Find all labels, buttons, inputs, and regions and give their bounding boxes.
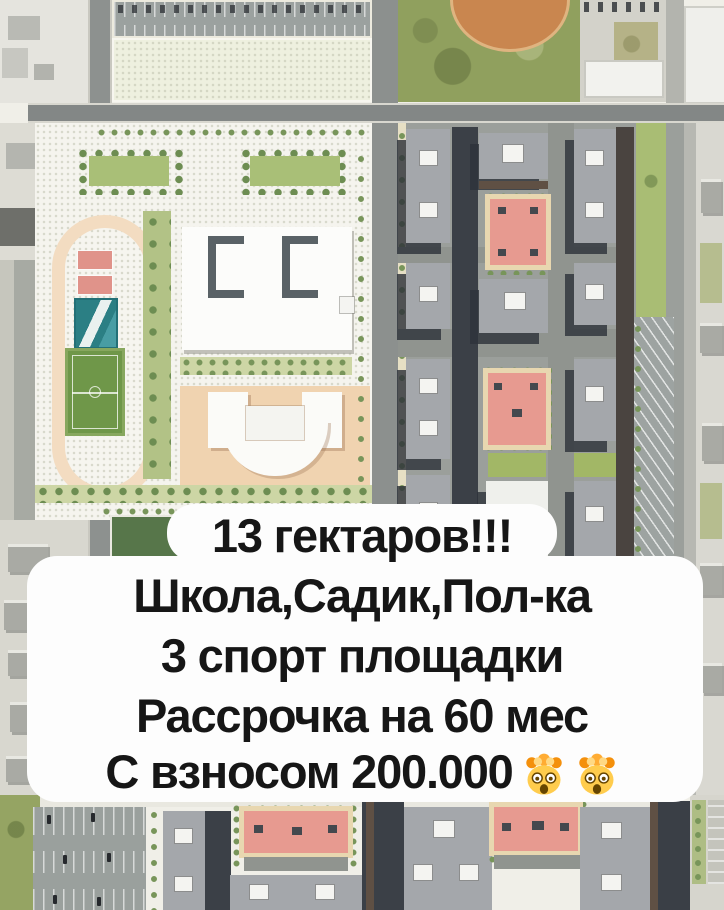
inner-street xyxy=(244,857,348,871)
car xyxy=(63,855,67,864)
basketball-court xyxy=(76,300,116,347)
facade-strip xyxy=(650,801,658,910)
court-equipment xyxy=(498,249,506,256)
parking-lot-top xyxy=(112,0,372,38)
parking-lane xyxy=(33,873,146,889)
school-building xyxy=(182,227,352,350)
court-equipment xyxy=(530,207,538,214)
building-top-right-corner xyxy=(686,8,724,102)
overlay-line-1: 13 гектаров!!! xyxy=(0,508,724,564)
roof-box xyxy=(586,285,603,299)
aerial-top-left xyxy=(0,0,88,103)
roof-box xyxy=(414,865,432,880)
red-mini-court xyxy=(78,276,112,294)
field-center-circle xyxy=(89,386,101,398)
building-shadow-band xyxy=(656,801,690,910)
courtyard-red-court xyxy=(490,199,546,265)
green-patch xyxy=(700,243,722,303)
house-footprint xyxy=(701,179,721,213)
roof-box xyxy=(602,823,621,838)
building-footprint xyxy=(8,16,40,40)
apartment-building xyxy=(574,129,616,243)
building-shadow-band xyxy=(362,799,404,910)
roof-box xyxy=(420,287,437,301)
court-equipment xyxy=(532,821,544,830)
inner-street xyxy=(548,123,574,560)
court-equipment xyxy=(254,825,263,833)
court-equipment xyxy=(498,207,506,214)
lot-bottom-right xyxy=(690,795,724,910)
apartment-building xyxy=(580,807,656,910)
facade-strip xyxy=(366,799,374,910)
facade-strip xyxy=(479,181,548,189)
roof-box xyxy=(420,151,437,165)
roof-box xyxy=(503,145,523,162)
roof-box xyxy=(460,865,478,880)
grass-field-photo xyxy=(398,0,580,102)
apartment-building xyxy=(406,263,450,329)
court-equipment xyxy=(328,825,337,833)
tree-column xyxy=(147,807,163,910)
courtyard-red-court xyxy=(494,807,578,851)
overlay-line-4: Рассрочка на 60 мес xyxy=(0,688,724,744)
overlay-line-2: Школа,Садик,Пол-ка xyxy=(0,568,724,624)
roof-box xyxy=(505,293,525,309)
planter-lawn xyxy=(89,156,169,186)
car xyxy=(91,813,95,822)
courtyard-lawn xyxy=(488,453,546,477)
baseball-diamond xyxy=(450,0,570,52)
roof-box xyxy=(602,875,621,890)
court-equipment xyxy=(560,823,569,831)
court-equipment xyxy=(512,409,522,417)
football-field xyxy=(68,351,122,433)
roof-box xyxy=(175,877,192,891)
building-footprint xyxy=(6,143,36,169)
school-campus xyxy=(35,123,372,520)
roof-box xyxy=(420,203,437,217)
house-footprint xyxy=(700,323,722,353)
lot-top-right xyxy=(580,0,666,102)
roof-box xyxy=(250,885,268,899)
top-road-horizontal xyxy=(28,103,724,123)
campus-top-tree-row xyxy=(95,127,365,139)
court-equipment xyxy=(530,383,538,390)
kindergarten-building xyxy=(246,406,304,440)
tree-alley xyxy=(143,211,171,479)
building-shadow-band xyxy=(452,127,478,560)
hedge-col-right xyxy=(354,149,372,485)
court-equipment xyxy=(494,383,502,390)
car xyxy=(53,895,57,904)
apartment-building xyxy=(406,129,450,243)
red-mini-court xyxy=(78,251,112,269)
court-equipment xyxy=(502,823,511,831)
inner-street xyxy=(398,329,634,357)
apartment-building xyxy=(406,359,450,459)
alley-trees xyxy=(143,211,171,479)
bottom-parking-lot xyxy=(33,807,146,910)
exploding-head-emoji xyxy=(575,753,619,797)
overlay-line-5-text: С взносом 200.000 xyxy=(105,744,512,800)
parking-lane xyxy=(33,835,146,851)
courtyard-red-court xyxy=(244,811,348,853)
roof-box xyxy=(420,379,437,393)
roof-box xyxy=(434,821,454,837)
scrub-patch xyxy=(614,22,658,66)
overlay-line-5: С взносом 200.000 xyxy=(0,744,724,800)
courtyard-red-court xyxy=(488,373,546,445)
building-footprint xyxy=(2,48,28,78)
roof-box xyxy=(316,885,334,899)
court-equipment xyxy=(530,249,538,256)
listing-promo-image: 13 гектаров!!! Школа,Садик,Пол-ка 3 спор… xyxy=(0,0,724,910)
apartment-building xyxy=(404,807,492,910)
court-equipment xyxy=(292,827,302,835)
apartment-building xyxy=(574,359,616,441)
parking-slots xyxy=(708,800,724,884)
roof-box xyxy=(586,151,603,165)
building-footprint xyxy=(34,64,54,80)
apartment-building xyxy=(479,133,548,179)
car xyxy=(107,853,111,862)
residential-blocks xyxy=(398,123,684,560)
east-lawn-strip xyxy=(636,123,666,317)
school-courtyard-u xyxy=(282,236,318,298)
roof-box xyxy=(175,829,192,843)
parking-lane xyxy=(116,17,370,25)
roof-box xyxy=(586,387,603,401)
roof-box xyxy=(340,297,354,313)
parked-cars-row xyxy=(584,2,662,12)
building-shadow-band xyxy=(205,811,231,910)
field-top-pale xyxy=(112,38,372,102)
exploding-head-emoji xyxy=(522,753,566,797)
school-courtyard-u xyxy=(208,236,244,298)
apartment-building xyxy=(230,875,362,910)
car xyxy=(47,815,51,824)
courtyard-lawn xyxy=(574,453,616,477)
hedge-row-mid xyxy=(180,357,352,375)
inner-street xyxy=(494,855,590,869)
apartment-building xyxy=(479,279,548,333)
car xyxy=(97,897,101,906)
apartment-building xyxy=(163,811,205,910)
roof-box xyxy=(420,421,437,435)
house-footprint xyxy=(702,423,722,461)
building-footprint xyxy=(586,62,662,96)
roof-box xyxy=(586,203,603,217)
bottom-band xyxy=(0,795,724,910)
hedge-row-bottom xyxy=(35,485,372,503)
green-median xyxy=(692,800,706,884)
parked-cars-row xyxy=(118,5,368,13)
planter-lawn xyxy=(250,156,340,186)
kindergarten-plot xyxy=(180,386,370,490)
overlay-line-3: 3 спорт площадки xyxy=(0,628,724,684)
apartment-building xyxy=(574,263,616,325)
